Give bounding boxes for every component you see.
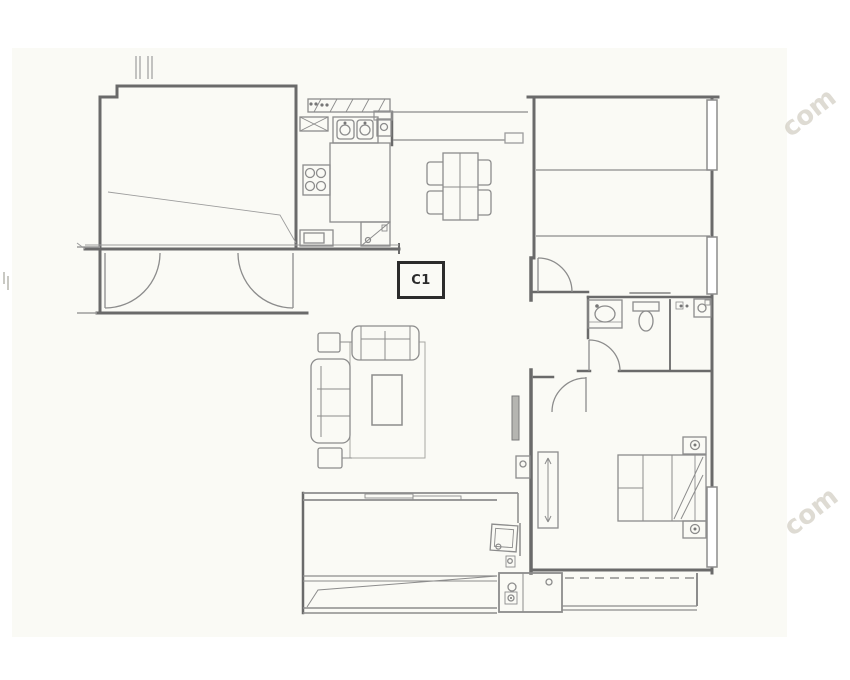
dining-set [427,153,491,220]
unit-label: C1 [397,261,445,299]
bedroom-bottom [538,437,706,538]
bathroom [588,299,711,331]
bedroom-top [536,170,710,236]
floorplan-svg [0,0,850,680]
balconies [303,493,700,613]
utility [490,523,562,612]
living-room [311,326,530,478]
floorplan-page: C1 com com [0,0,850,680]
kitchen [300,99,391,246]
